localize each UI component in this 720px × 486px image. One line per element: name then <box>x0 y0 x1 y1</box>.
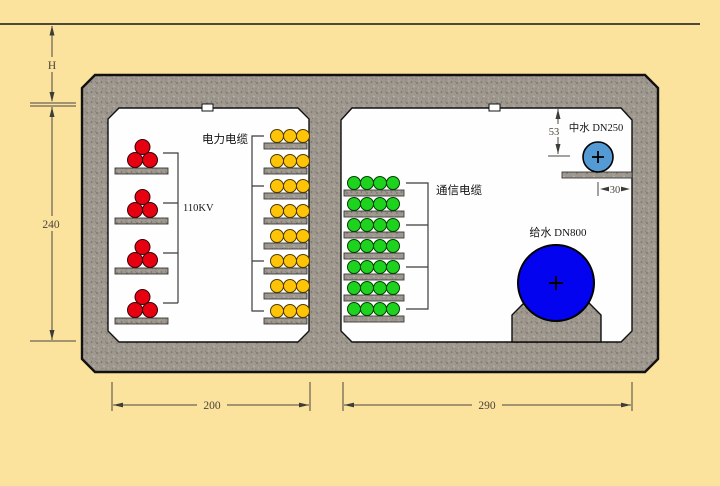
power-cable <box>284 230 297 243</box>
comm-cable <box>348 282 361 295</box>
tunnel-cross-section: H 240 110KV 电力电缆 通信电缆 给水 DN800 <box>0 0 720 486</box>
comm-cable <box>348 219 361 232</box>
cable-tray <box>344 316 404 322</box>
power-cable <box>284 180 297 193</box>
cable-tray <box>115 168 168 174</box>
pipe-support-shelf <box>562 172 632 178</box>
comm-cable <box>387 282 400 295</box>
comm-cable <box>387 198 400 211</box>
comm-cable <box>361 261 374 274</box>
power-cable <box>271 155 284 168</box>
comm-cable <box>361 198 374 211</box>
comm-cable <box>361 177 374 190</box>
power-cable-label: 电力电缆 <box>202 133 248 146</box>
depth-label: H <box>48 60 56 72</box>
ceiling-notch-right <box>489 104 500 111</box>
cable-tray <box>264 318 307 324</box>
power-cable <box>297 155 310 168</box>
cable-tray <box>344 274 404 280</box>
cable-tray <box>264 243 307 249</box>
comm-cable <box>374 198 387 211</box>
hv-cable <box>143 303 158 318</box>
comm-cable <box>361 282 374 295</box>
hv-cable <box>128 153 143 168</box>
comm-cable <box>348 198 361 211</box>
comm-cable <box>374 261 387 274</box>
hv-cable <box>135 140 150 155</box>
cable-tray <box>115 268 168 274</box>
cable-tray <box>264 143 307 149</box>
power-cable <box>284 205 297 218</box>
hv-cable <box>128 253 143 268</box>
comm-cable <box>348 261 361 274</box>
hv-cable <box>143 253 158 268</box>
power-cable <box>271 230 284 243</box>
power-cable <box>297 180 310 193</box>
right-width-label: 290 <box>478 400 496 412</box>
hv-rating-label: 110KV <box>183 203 214 214</box>
power-cable <box>271 180 284 193</box>
comm-cable <box>361 303 374 316</box>
wall-clearance-label: 30 <box>610 185 621 196</box>
tunnel-cross-section-page: H 240 110KV 电力电缆 通信电缆 给水 DN800 <box>0 0 720 486</box>
cable-tray <box>115 218 168 224</box>
cable-tray <box>344 253 404 259</box>
cable-tray <box>115 318 168 324</box>
power-cable <box>284 130 297 143</box>
ceiling-notch-left <box>202 104 213 111</box>
power-cable <box>297 205 310 218</box>
power-cable <box>297 255 310 268</box>
power-cable <box>271 305 284 318</box>
cable-tray <box>264 293 307 299</box>
comm-cable <box>387 219 400 232</box>
power-cable <box>297 230 310 243</box>
power-cable <box>284 255 297 268</box>
hv-cable <box>143 203 158 218</box>
cable-tray <box>344 232 404 238</box>
comm-cable <box>387 177 400 190</box>
cable-tray <box>344 190 404 196</box>
power-cable <box>284 155 297 168</box>
power-cable <box>297 130 310 143</box>
power-cable <box>284 305 297 318</box>
hv-cable <box>128 303 143 318</box>
hv-cable <box>135 290 150 305</box>
power-cable <box>284 280 297 293</box>
hv-cable <box>143 153 158 168</box>
left-width-label: 200 <box>203 400 221 412</box>
hv-cable <box>135 240 150 255</box>
cable-tray <box>344 211 404 217</box>
water-supply-label: 给水 DN800 <box>529 226 587 239</box>
interior-height-label: 240 <box>42 219 60 231</box>
hv-cable <box>135 190 150 205</box>
comm-cable <box>387 303 400 316</box>
cable-tray <box>264 193 307 199</box>
comm-cable-label: 通信电缆 <box>436 184 482 197</box>
reclaimed-water-label: 中水 DN250 <box>569 121 624 134</box>
power-cable <box>271 205 284 218</box>
power-cable <box>271 280 284 293</box>
cable-tray <box>264 168 307 174</box>
comm-cable <box>374 303 387 316</box>
power-cable <box>297 305 310 318</box>
comm-cable <box>387 261 400 274</box>
comm-cable <box>374 177 387 190</box>
comm-cable <box>374 282 387 295</box>
comm-cable <box>348 177 361 190</box>
cable-tray <box>264 268 307 274</box>
cable-tray <box>344 295 404 301</box>
comm-cable <box>361 240 374 253</box>
comm-cable <box>361 219 374 232</box>
cable-tray <box>264 218 307 224</box>
power-cable <box>271 130 284 143</box>
ceiling-clearance-label: 53 <box>549 127 560 138</box>
power-cable <box>297 280 310 293</box>
hv-cable <box>128 203 143 218</box>
comm-cable <box>374 240 387 253</box>
comm-cable <box>374 219 387 232</box>
comm-cable <box>387 240 400 253</box>
comm-cable <box>348 303 361 316</box>
comm-cable <box>348 240 361 253</box>
power-cable <box>271 255 284 268</box>
